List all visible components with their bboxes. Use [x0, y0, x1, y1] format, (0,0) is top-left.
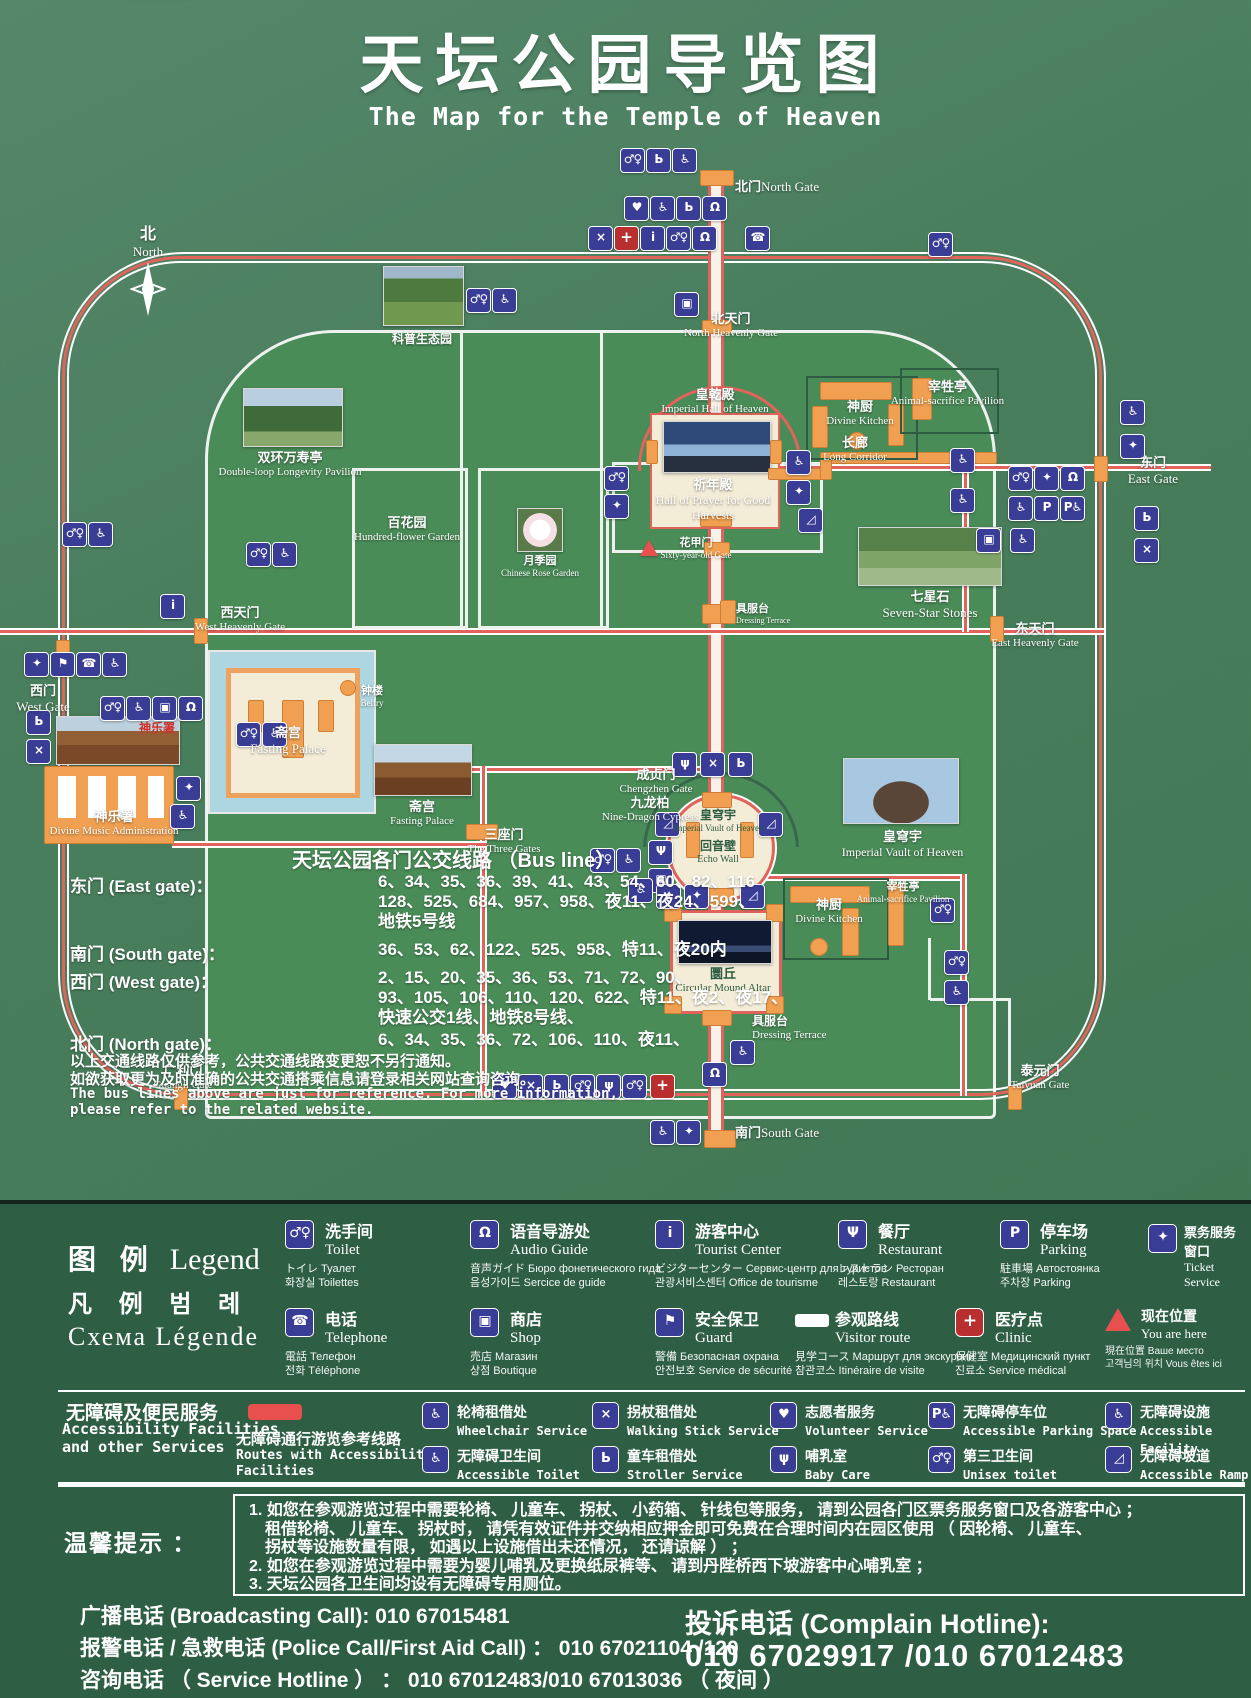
parking-icon: P	[1034, 496, 1059, 521]
imperial-vault-photo	[843, 758, 959, 824]
legend-toilet: ♂♀ 洗手间Toilet トイレ Туалет화장실 Toilettes	[285, 1218, 475, 1291]
accessible-route-en: Routes with Accessibility Facilities	[236, 1448, 432, 1479]
accessible-icon: ♿	[650, 1120, 675, 1145]
accessible-icon: ♿	[650, 196, 675, 221]
stroller-icon: Ь	[592, 1446, 619, 1473]
toilet-icon: ♂♀	[285, 1220, 314, 1249]
bus-line-title: 天坛公园各门公交线路 （Bus line）	[292, 844, 615, 873]
accessible-icon: ♿	[950, 448, 975, 473]
legend-telephone: ☎ 电话Telephone 電話 Телефон전화 Téléphone	[285, 1306, 475, 1379]
toilet-icon: ♂♀	[100, 696, 125, 721]
compass-needle-icon	[130, 262, 166, 316]
tips-box: 1. 如您在参观游览过程中需要轮椅、 儿童车、 拐杖、 小药箱、 针线包等服务，…	[233, 1494, 1245, 1596]
label-north-gate: 北门North Gate	[735, 176, 819, 197]
wall	[928, 938, 931, 1000]
toilet-icon: ♂♀	[928, 232, 953, 257]
label-rose-garden: 月季园 Chinese Rose Garden	[480, 552, 600, 578]
ticket-icon: ✦	[604, 494, 629, 519]
toilet-icon: ♂♀	[604, 466, 629, 491]
gate-block	[646, 440, 658, 464]
stroller-icon: Ь	[676, 196, 701, 221]
label-east-gate: 东门 East Gate	[1098, 452, 1208, 487]
divider	[58, 1482, 1245, 1487]
hundred-flower-garden-wall	[352, 468, 468, 629]
label-dressing-terrace-north: 具服台 Dressing Terrace	[736, 600, 826, 625]
shop-icon: ▣	[152, 696, 177, 721]
label-hall-of-prayer: 祈年殿 Hall of Prayer for Good Harvests	[650, 474, 776, 523]
legend-audio-guide: Ω 语音导游处Audio Guide 音声ガイド Бюро фонетическ…	[470, 1218, 660, 1291]
tips-label: 温馨提示 ：	[64, 1524, 197, 1558]
legend-ticket-service: ✦ 票务服务窗口Ticket Service	[1148, 1222, 1248, 1290]
broadcasting-call: 广播电话 (Broadcasting Call): 010 67015481	[80, 1600, 510, 1630]
legend-title-jp-kr: 凡 例 범 례	[68, 1284, 250, 1319]
access-volunteer: ♥ 志愿者服务Volunteer Service	[770, 1402, 928, 1440]
toilet-icon: ♂♀	[466, 288, 491, 313]
baby-care-icon: ψ	[770, 1446, 797, 1473]
accessible-icon: ♿	[950, 488, 975, 513]
compass-zh: 北	[114, 220, 182, 244]
label-fasting-palace-photo: 斋宫 Fasting Palace	[366, 796, 478, 827]
accessible-toilet-icon: ♿	[422, 1446, 449, 1473]
audio-guide-icon: Ω	[178, 696, 203, 721]
hall-of-prayer-photo	[663, 421, 771, 473]
telephone-icon: ☎	[76, 652, 101, 677]
shop-icon: ▣	[976, 528, 1001, 553]
bus-north-value: 6、34、35、36、72、106、110、夜11、	[378, 1030, 690, 1050]
accessible-parking-icon: P♿	[928, 1402, 955, 1429]
dressing-terrace-north-block	[720, 600, 736, 624]
label-west-gate: 西门 West Gate	[0, 680, 86, 715]
label-echo-wall: 皇穹宇 Imperial Vault of Heaven 回音壁 Echo Wa…	[669, 806, 767, 865]
guard-icon: ⚑	[50, 652, 75, 677]
label-imperial-vault-photo: 皇穹宇 Imperial Vault of Heaven	[835, 826, 970, 860]
restaurant-icon: Ψ	[838, 1220, 867, 1249]
stroller-icon: Ь	[646, 148, 671, 173]
label-animal-pavilion-south: 宰牲亭 Animal-sacrifice Pavilion	[838, 878, 968, 904]
legend-shop: ▣ 商店Shop 売店 Магазин상점 Boutique	[470, 1306, 660, 1379]
stroller-icon: Ь	[728, 752, 753, 777]
accessible-icon: ♿	[672, 148, 697, 173]
label-seven-star-stones: 七星石 Seven-Star Stones	[855, 586, 1005, 621]
ticket-icon: ✦	[1034, 466, 1059, 491]
bus-note-3: The bus lines above are just for referen…	[70, 1086, 618, 1102]
accessible-icon: ♿	[1105, 1402, 1132, 1429]
bus-west-value: 2、15、20、35、36、53、71、72、90、 93、105、106、11…	[378, 968, 788, 1028]
toilet-icon: ♂♀	[1008, 466, 1033, 491]
legend-tourist-center: i 游客中心Tourist Center ビジターセンター Сервис-цен…	[655, 1218, 845, 1291]
label-north-heavenly-gate: 北天门 North Heavenly Gate	[666, 308, 796, 339]
service-hotline: 咨询电话 （ Service Hotline ） ： 010 67012483/…	[80, 1664, 784, 1694]
building	[810, 938, 828, 956]
bus-east-value: 6、34、35、36、39、41、43、54、60、82、116 128、525…	[378, 872, 755, 932]
access-toilet: ♿ 无障碍卫生间Accessible Toilet	[422, 1446, 580, 1484]
ticket-icon: ✦	[676, 1120, 701, 1145]
west-east-road	[0, 628, 1104, 635]
telephone-icon: ☎	[745, 226, 770, 251]
label-double-loop-pavilion: 双环万寿亭 Double-loop Longevity Pavilion	[200, 447, 380, 478]
accessible-icon: ♿	[272, 542, 297, 567]
page-subtitle: The Map for the Temple of Heaven	[0, 102, 1251, 131]
north-gate-block	[700, 170, 734, 186]
toilet-icon: ♂♀	[622, 1074, 647, 1099]
divine-music-photo-label: 神乐署	[139, 719, 175, 736]
label-taiyuan-gate: 泰元门 Taiyuan Gate	[985, 1060, 1095, 1091]
volunteer-icon: ♥	[624, 196, 649, 221]
accessible-icon: ♿	[730, 1040, 755, 1065]
accessible-toilet-icon: ♿	[126, 696, 151, 721]
you-are-here-icon	[1105, 1308, 1131, 1331]
clinic-icon: +	[955, 1308, 984, 1337]
audio-guide-icon: Ω	[702, 196, 727, 221]
walking-stick-icon: ×	[588, 226, 613, 251]
unisex-toilet-icon: ♂♀	[928, 1446, 955, 1473]
bus-south-value: 36、53、62、122、525、958、特11、夜20内	[378, 940, 727, 960]
accessible-parking-icon: P♿	[1060, 496, 1085, 521]
ticket-icon: ✦	[176, 776, 201, 801]
clinic-icon: +	[614, 226, 639, 251]
label-fasting-palace: 斋宫 Fasting Palace	[228, 722, 348, 757]
toilet-icon: ♂♀	[62, 522, 87, 547]
clinic-icon: +	[650, 1074, 675, 1099]
tourist-center-icon: i	[640, 226, 665, 251]
label-west-heavenly-gate: 西天门 West Heavenly Gate	[170, 602, 310, 633]
accessible-icon: ♿	[102, 652, 127, 677]
bus-note-4: please refer to the related website.	[70, 1102, 373, 1118]
telephone-icon: ☎	[285, 1308, 314, 1337]
visitor-route-icon	[795, 1314, 829, 1327]
stroller-icon: Ь	[1134, 506, 1159, 531]
access-unisex-toilet: ♂♀ 第三卫生间Unisex toilet	[928, 1446, 1057, 1484]
divine-music-photo: 神乐署	[56, 716, 180, 765]
science-garden-photo	[383, 266, 464, 326]
wall	[930, 998, 1010, 1001]
audio-guide-icon: Ω	[1060, 466, 1085, 491]
label-south-gate: 南门South Gate	[735, 1122, 819, 1143]
accessible-icon: ♿	[1010, 528, 1035, 553]
label-east-heavenly-gate: 东天门 East Heavenly Gate	[965, 618, 1105, 649]
accessible-route-swatch	[248, 1404, 302, 1420]
shop-icon: ▣	[470, 1308, 499, 1337]
bus-east-label: 东门 (East gate)：	[70, 872, 213, 897]
walking-stick-icon: ×	[1134, 538, 1159, 563]
ramp-icon: ◿	[1105, 1446, 1132, 1473]
label-chengzhen-gate: 成贞门 Chengzhen Gate	[600, 764, 712, 795]
guard-icon: ⚑	[655, 1308, 684, 1337]
complain-hotline-label: 投诉电话 (Complain Hotline):	[685, 1602, 1049, 1641]
label-imperial-hall: 皇乾殿 Imperial Hall of Heaven	[640, 384, 790, 415]
walking-stick-icon: ×	[26, 739, 51, 764]
label-long-corridor: 长廊 Long Corridor	[800, 432, 910, 463]
bus-south-label: 南门 (South gate)：	[70, 940, 225, 965]
parking-icon: P	[1000, 1220, 1029, 1249]
access-stroller: Ь 童车租借处Stroller Service	[592, 1446, 743, 1484]
toilet-icon: ♂♀	[666, 226, 691, 251]
complain-hotline-number: 010 67029917 /010 67012483	[685, 1638, 1125, 1674]
label-belfry: 钟楼 Belfry	[340, 682, 404, 708]
legend-you-are-here: 现在位置You are here 現在位置 Ваше место고객님의 위치 …	[1105, 1306, 1250, 1371]
toilet-icon: ♂♀	[944, 950, 969, 975]
police-first-aid-call: 报警电话 / 急救电话 (Police Call/First Aid Call)…	[80, 1632, 739, 1662]
accessible-route-zh: 无障碍通行游览参考线路	[236, 1428, 401, 1449]
ticket-icon: ✦	[1148, 1224, 1177, 1253]
toilet-icon: ♂♀	[246, 542, 271, 567]
tourist-center-icon: i	[655, 1220, 684, 1249]
ticket-icon: ✦	[24, 652, 49, 677]
accessible-icon: ♿	[1120, 400, 1145, 425]
legend-title: 图 例Legend	[68, 1238, 260, 1278]
accessible-toilet-icon: ♿	[1008, 496, 1033, 521]
compass: 北 North	[114, 220, 182, 322]
accessible-toilet-icon: ♿	[944, 980, 969, 1005]
access-baby-care: ψ 哺乳室Baby Care	[770, 1446, 870, 1484]
bus-west-label: 西门 (West gate)：	[70, 968, 217, 993]
fasting-palace-photo	[374, 744, 472, 796]
audio-guide-icon: Ω	[470, 1220, 499, 1249]
divider	[58, 1390, 1245, 1392]
access-ramp: ◿ 无障碍坡道Accessible Ramp	[1105, 1446, 1248, 1484]
access-wheelchair: ♿ 轮椅租借处Wheelchair Service	[422, 1402, 587, 1440]
label-science-garden: 科普生态园	[368, 330, 476, 347]
audio-guide-icon: Ω	[702, 1062, 727, 1087]
compass-en: North	[114, 244, 182, 260]
accessible-toilet-icon: ♿	[616, 848, 641, 873]
ramp-icon: ◿	[798, 508, 823, 533]
volunteer-icon: ♥	[770, 1402, 797, 1429]
rose-garden-photo	[517, 508, 563, 552]
label-divine-music: 神乐署 Divine Music Administration	[34, 806, 194, 837]
gate-block	[770, 440, 782, 464]
page-title: 天坛公园导览图	[0, 14, 1251, 106]
toilet-icon: ♂♀	[620, 148, 645, 173]
walking-stick-icon: ×	[592, 1402, 619, 1429]
label-hundred-flower-garden: 百花园 Hundred-flower Garden	[347, 512, 467, 543]
south-gate-block	[704, 1130, 736, 1148]
accessible-toilet-icon: ♿	[88, 522, 113, 547]
wheelchair-icon: ♿	[422, 1402, 449, 1429]
label-sixty-year-gate: 花甲门 Sixty-year-old Gate	[656, 534, 736, 560]
accessible-toilet-icon: ♿	[492, 288, 517, 313]
ticket-icon: ✦	[786, 480, 811, 505]
access-walking-stick: × 拐杖租借处Walking Stick Service	[592, 1402, 779, 1440]
audio-guide-icon: Ω	[692, 226, 717, 251]
label-animal-pavilion-north: 宰牲亭 Animal-sacrifice Pavilion	[880, 376, 1015, 407]
legend-title-ru-fr: Схема Légende	[68, 1322, 259, 1352]
double-loop-pavilion-photo	[243, 388, 343, 447]
